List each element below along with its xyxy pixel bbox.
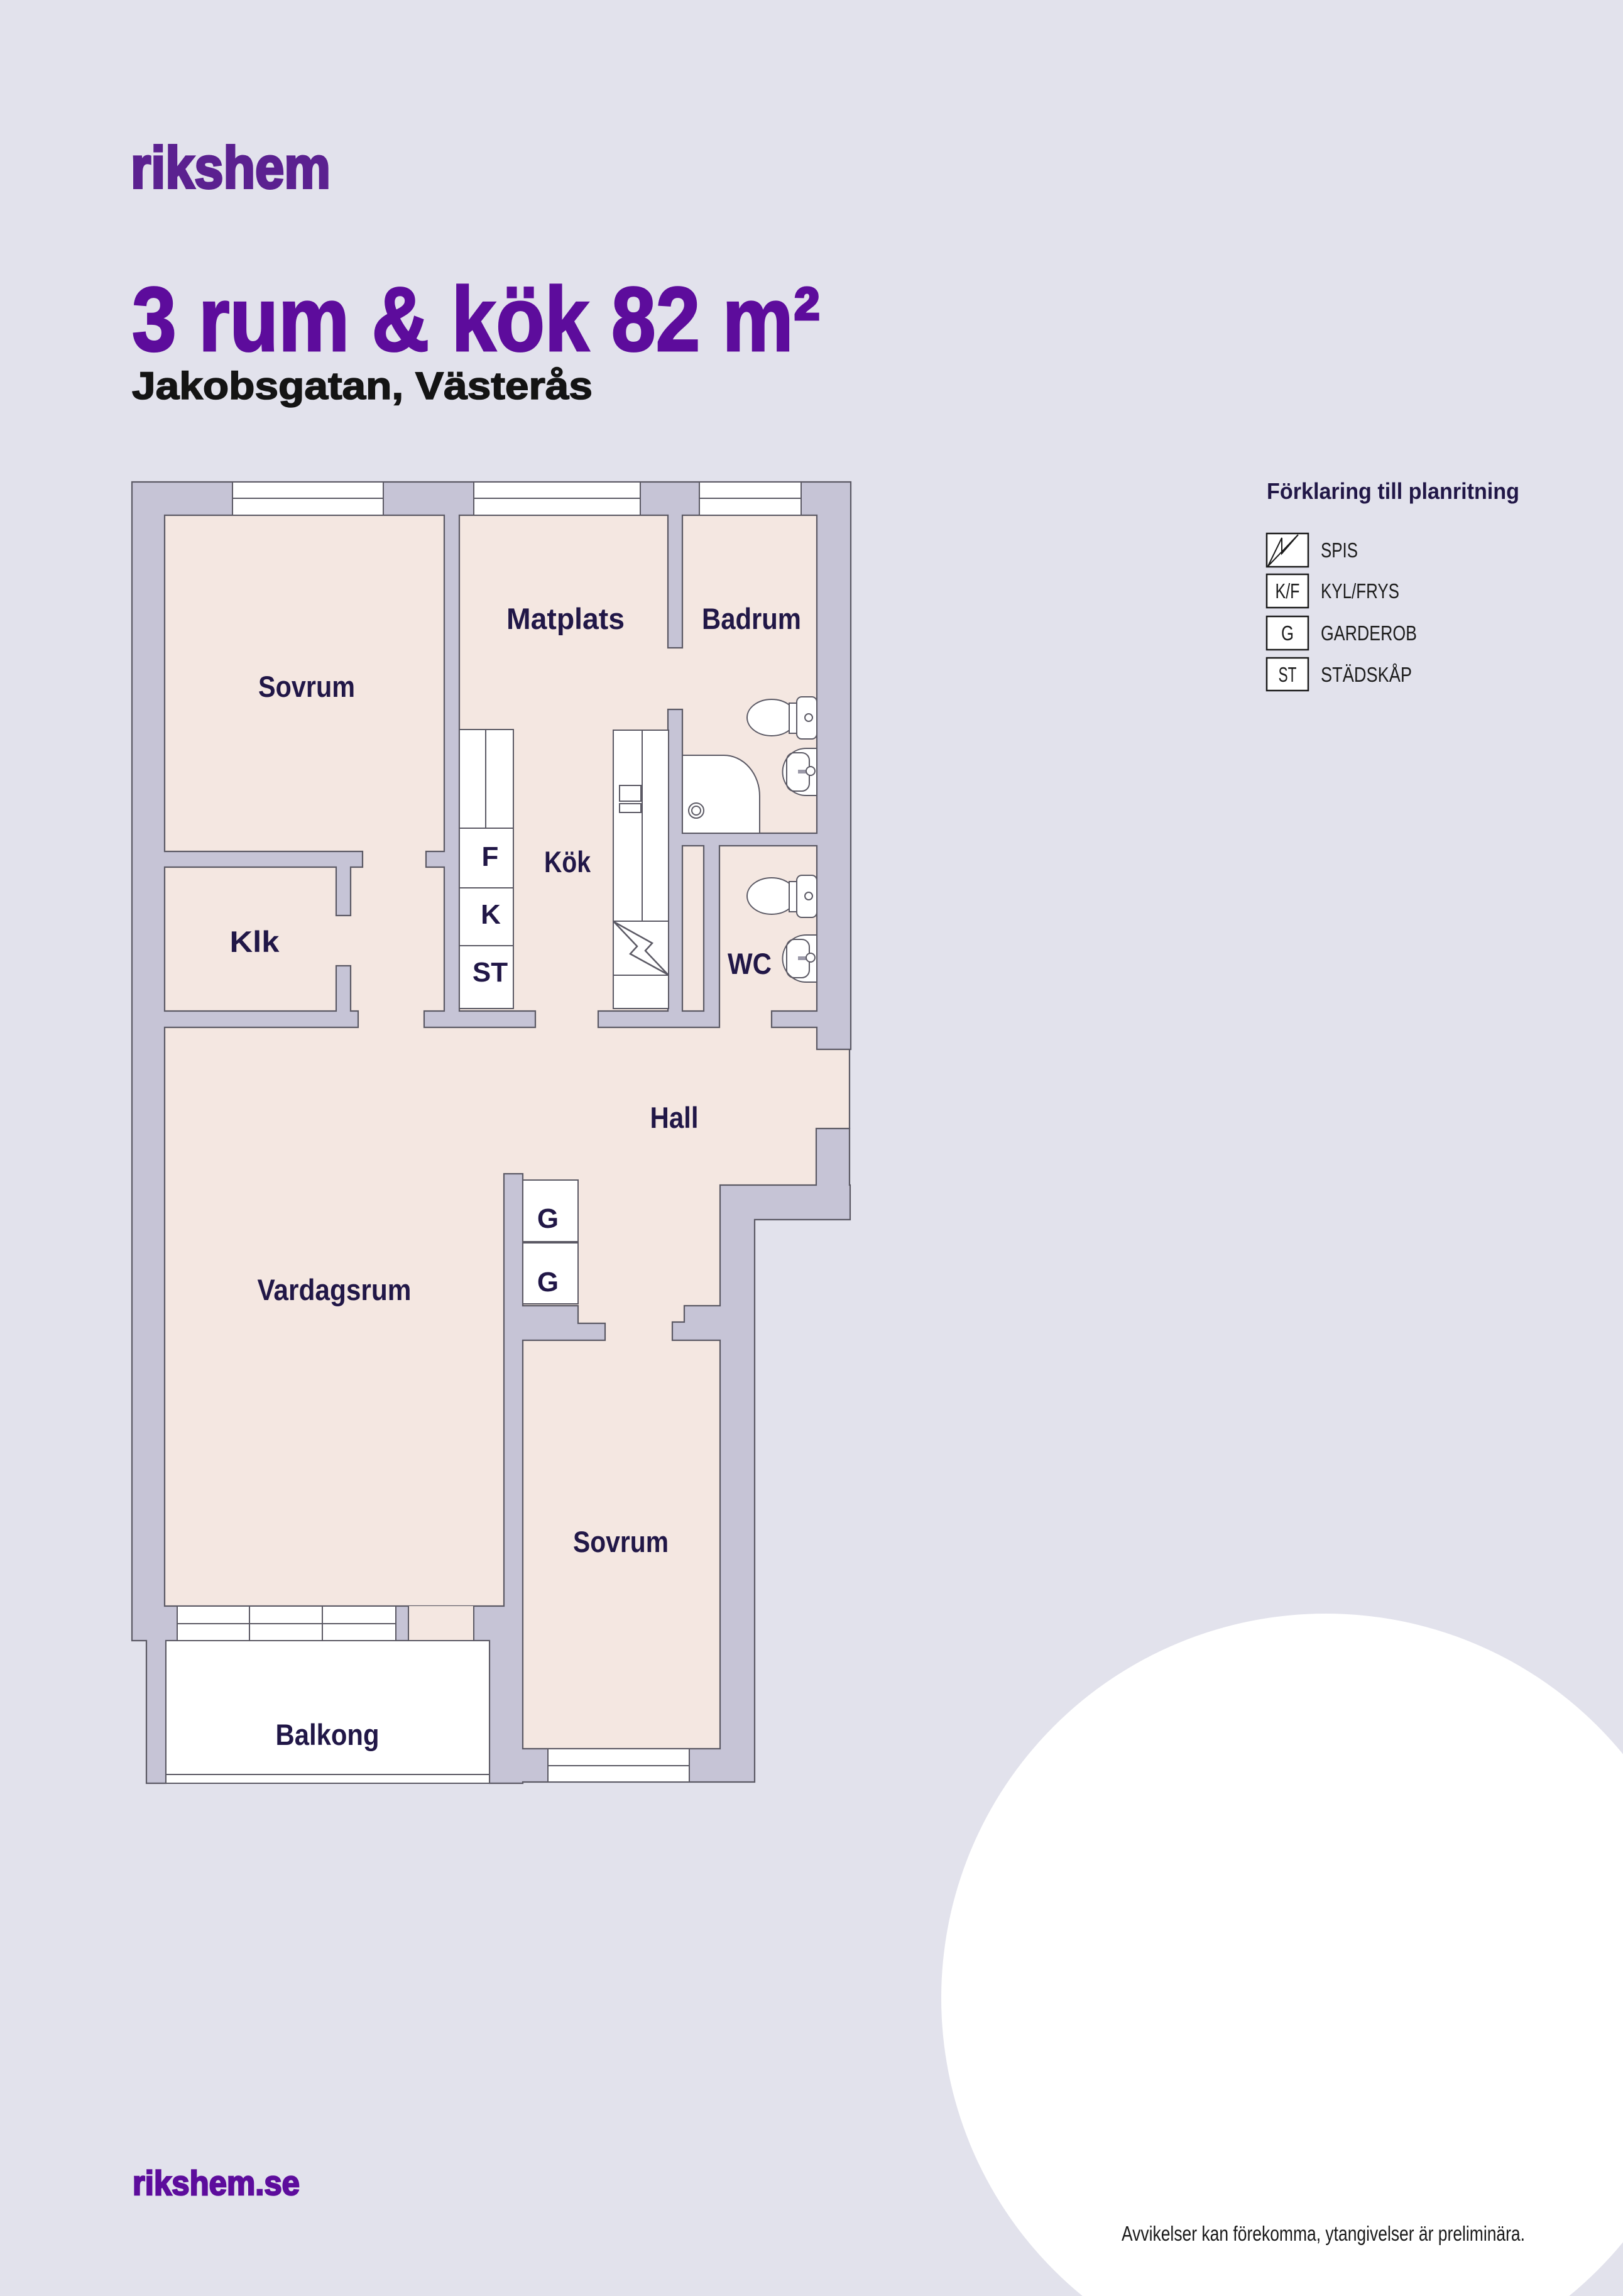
svg-text:F: F	[482, 841, 499, 872]
svg-text:KYL/FRYS: KYL/FRYS	[1321, 579, 1399, 603]
svg-text:Balkong: Balkong	[276, 1718, 380, 1751]
svg-text:WC: WC	[728, 947, 772, 980]
svg-text:K/F: K/F	[1276, 579, 1300, 603]
svg-text:Klk: Klk	[230, 925, 280, 958]
svg-text:Avvikelser kan förekomma, ytan: Avvikelser kan förekomma, ytangivelser ä…	[1122, 2222, 1525, 2245]
svg-text:STÄDSKÅP: STÄDSKÅP	[1321, 663, 1412, 686]
svg-text:G: G	[1281, 621, 1294, 645]
svg-text:Matplats: Matplats	[506, 602, 625, 635]
svg-text:G: G	[537, 1267, 559, 1298]
svg-text:Förklaring till planritning: Förklaring till planritning	[1267, 478, 1519, 504]
svg-text:Sovrum: Sovrum	[573, 1525, 669, 1558]
svg-text:rikshem: rikshem	[131, 134, 331, 200]
svg-text:Hall: Hall	[650, 1101, 699, 1134]
svg-text:3 rum & kök 82 m²: 3 rum & kök 82 m²	[132, 268, 820, 370]
svg-text:Sovrum: Sovrum	[258, 670, 355, 703]
svg-text:K: K	[481, 899, 501, 930]
svg-text:rikshem.se: rikshem.se	[133, 2163, 300, 2202]
svg-text:GARDEROB: GARDEROB	[1321, 621, 1417, 645]
svg-text:SPIS: SPIS	[1321, 538, 1358, 562]
svg-text:ST: ST	[1279, 663, 1297, 686]
svg-text:Kök: Kök	[544, 845, 591, 878]
svg-text:G: G	[537, 1203, 559, 1234]
svg-text:Jakobsgatan, Västerås: Jakobsgatan, Västerås	[132, 364, 593, 407]
svg-text:Badrum: Badrum	[702, 602, 801, 635]
svg-text:ST: ST	[473, 957, 508, 988]
svg-text:Vardagsrum: Vardagsrum	[258, 1273, 412, 1306]
